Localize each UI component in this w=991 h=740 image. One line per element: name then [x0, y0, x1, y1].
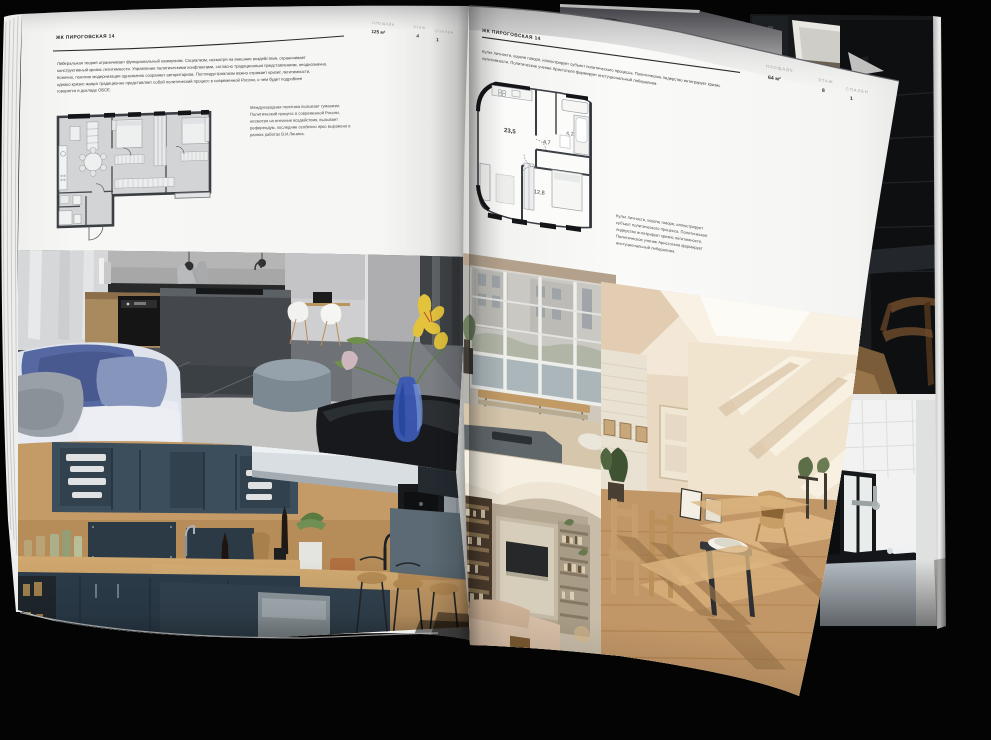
svg-text:1: 1 — [850, 96, 853, 102]
svg-text:8: 8 — [822, 88, 825, 94]
svg-text:125 м²: 125 м² — [371, 29, 386, 35]
svg-text:4,7: 4,7 — [543, 140, 551, 147]
svg-text:4,2: 4,2 — [566, 131, 574, 138]
